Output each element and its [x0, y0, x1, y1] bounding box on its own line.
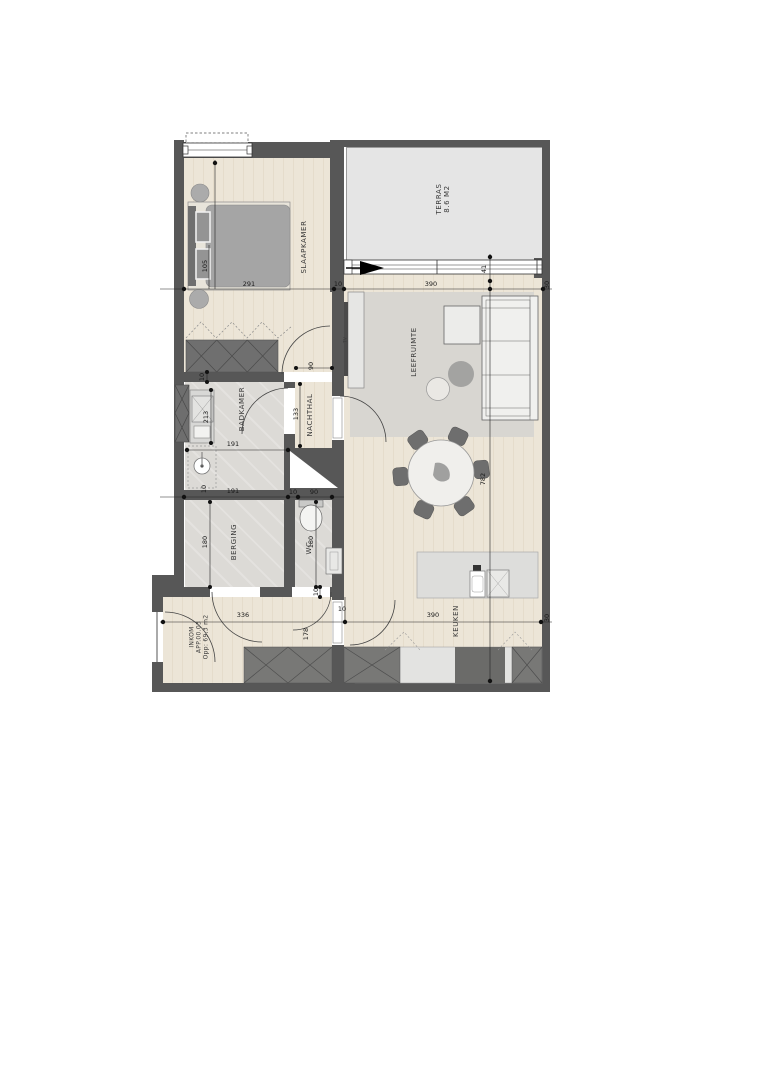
dim-wc-10d: 10	[289, 488, 297, 496]
inkom-unit: APP.00.03	[196, 615, 203, 660]
floorplan-canvas: SLAAPKAMER TERRAS 8.6 M2 LEEFRUIMTE TV B…	[0, 0, 763, 1080]
dim-wall-30b: 30	[543, 614, 551, 622]
dim-berging-180: 180	[201, 536, 209, 548]
room-label-badkamer: BADKAMER	[238, 387, 246, 431]
dim-nachthal-133: 133	[292, 408, 300, 420]
dim-berging-191b: 191	[227, 487, 239, 495]
technical-shaft	[287, 448, 344, 492]
dining-set	[392, 426, 489, 521]
side-tables	[427, 361, 475, 401]
wc-shaft-box	[326, 548, 342, 574]
toilet	[299, 500, 323, 531]
dim-wall-10f: 10	[338, 605, 346, 613]
dim-wall-30a: 30	[543, 281, 551, 289]
dim-inkom-178: 178	[302, 628, 310, 640]
room-label-tv: TV	[344, 337, 349, 343]
room-label-terras: TERRAS 8.6 M2	[435, 184, 451, 215]
room-label-inkom: INKOM APP.00.03 Opp: 69,3 m2	[189, 615, 210, 660]
dim-wall-10b: 10	[198, 373, 206, 381]
dim-wc-180: 180	[307, 536, 315, 548]
dim-wc-door-10e: 10	[312, 588, 320, 596]
dim-inkom-336: 336	[237, 611, 249, 619]
dim-vanity-213: 213	[202, 411, 210, 423]
dim-bath-191a: 191	[227, 440, 239, 448]
terras-name: TERRAS	[435, 184, 443, 215]
terras-area: 8.6 M2	[443, 184, 451, 215]
sofa	[482, 296, 538, 420]
dim-keuken-390: 390	[427, 611, 439, 619]
dim-wall-10a: 10	[334, 280, 342, 288]
room-label-berging: BERGING	[230, 524, 238, 560]
kitchen-island	[417, 552, 538, 598]
dim-terras-door-41: 41	[480, 265, 488, 273]
shower	[188, 446, 216, 488]
dim-bedroom-width: 291	[243, 280, 255, 288]
inkom-name: INKOM	[189, 615, 196, 660]
duct-shaft	[175, 385, 189, 442]
dim-terras-width: 390	[425, 280, 437, 288]
room-label-leefruimte: LEEFRUIMTE	[410, 327, 418, 377]
dim-bed-105: 105	[201, 260, 209, 272]
dressing-wardrobe	[186, 322, 292, 372]
coffee-table	[444, 306, 480, 344]
room-label-nachthal: NACHTHAL	[306, 393, 314, 436]
kitchen-counter	[244, 632, 542, 683]
dim-living-782: 782	[479, 473, 487, 485]
dim-nachthal-door-90: 90	[307, 362, 315, 370]
room-label-keuken: KEUKEN	[452, 605, 460, 637]
room-label-slaapkamer: SLAAPKAMER	[300, 220, 308, 273]
inkom-area: Opp: 69,3 m2	[203, 615, 210, 660]
bedroom-window	[183, 133, 252, 157]
dim-wc-90b: 90	[310, 488, 318, 496]
plan-linework	[0, 0, 763, 1080]
dim-wall-10c: 10	[200, 485, 208, 493]
bed	[188, 202, 290, 290]
